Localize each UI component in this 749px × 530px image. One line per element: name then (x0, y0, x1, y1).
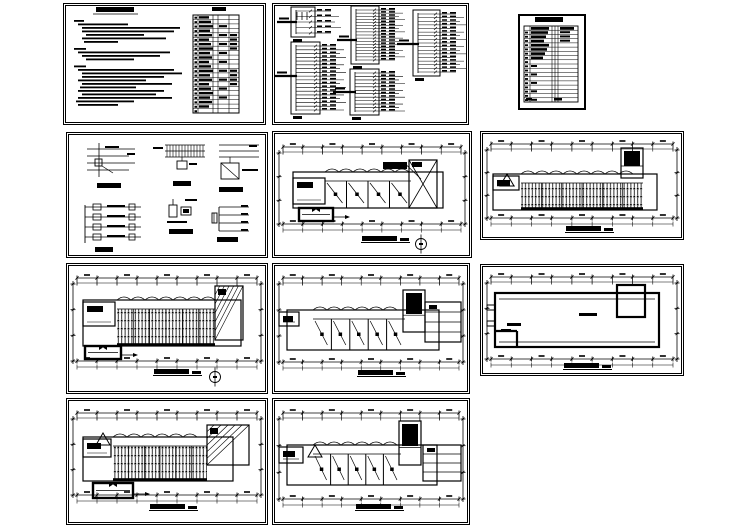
plan-title: 一层电气平面图1:100 (361, 236, 410, 243)
plan-title-text: 一层电气平面图 (362, 236, 397, 241)
detail-caption: 弱电系统图 (173, 181, 191, 186)
sheet-floor-plan-5: 三层照明平面图1:100 (66, 398, 268, 525)
sheet-floor-plan-3: 一层照明平面图1:100 (66, 263, 268, 394)
sheet-distribution-systems: AL1AL2AL3AL4AL5 (272, 3, 469, 125)
plan-title-text: 三层照明平面图 (150, 504, 185, 509)
plan-title-text: 三层电气平面图 (356, 504, 391, 509)
index-title: 图纸目录 (535, 17, 563, 22)
sheet-floor-plan-6: 三层电气平面图1:100 (272, 398, 470, 525)
plan-scale-text: 1:100 (188, 506, 197, 509)
notes-title: 电气设计说明 (96, 7, 134, 12)
design-notes-drawing (66, 6, 263, 122)
plan-title-text: 二层照明平面图 (566, 226, 601, 231)
plan-title-text: 一层照明平面图 (154, 369, 189, 374)
sheet-floor-plan-1: 一层电气平面图1:100 (272, 131, 472, 258)
plan-title: 二层电气平面图1:100 (357, 370, 406, 377)
panel-label: AL5 (415, 78, 424, 81)
distribution-systems-drawing (275, 6, 466, 122)
detail-caption: 应急照明接线图 (97, 183, 121, 188)
plan-title: 二层照明平面图1:100 (565, 226, 614, 233)
plan-scale-text: 1:100 (602, 365, 611, 368)
plan-title: 三层电气平面图1:100 (355, 504, 404, 511)
plan-scale-text: 1:100 (396, 372, 405, 375)
plan-scale-text: 1:100 (604, 228, 613, 231)
sheet-drawing-index: 图纸目录 (518, 14, 586, 110)
detail-caption: 干线系统图 (95, 247, 113, 252)
cad-drawing-collage: { "canvas": {"width": 749, "height": 530… (0, 0, 749, 530)
plan-title: 一层照明平面图1:100 (153, 369, 202, 376)
plan-title: 三层照明平面图1:100 (149, 504, 198, 511)
plan-scale-text: 1:100 (400, 238, 409, 241)
plan-scale-text: 1:100 (192, 371, 201, 374)
detail-caption: 等电位联结大样 (169, 229, 193, 234)
sheet-floor-plan-2: 二层照明平面图1:100 (480, 131, 684, 240)
floor-plan-2-drawing (483, 134, 681, 237)
plan-scale-text: 1:100 (394, 506, 403, 509)
drawing-index-table (520, 16, 584, 108)
plan-title: 屋顶防雷平面图1:100 (563, 363, 612, 370)
sheet-detail-diagrams: 应急照明接线图弱电系统图防雷引下线大样干线系统图等电位联结大样接地装置大样 (66, 132, 268, 258)
plan-title-text: 二层电气平面图 (358, 370, 393, 375)
legend-title: 图例 (212, 7, 226, 11)
panel-label: AL3 (353, 66, 362, 69)
panel-label: AL2 (293, 116, 302, 119)
sheet-roof-plan: 屋顶防雷平面图1:100 (480, 264, 684, 376)
detail-caption: 防雷引下线大样 (219, 187, 243, 192)
panel-label: AL4 (352, 117, 361, 120)
roof-plan-drawing (483, 267, 681, 373)
sheet-design-notes: 电气设计说明图例 (63, 3, 266, 125)
sheet-floor-plan-4: 二层电气平面图1:100 (272, 263, 470, 394)
detail-caption: 接地装置大样 (217, 237, 238, 242)
plan-title-text: 屋顶防雷平面图 (564, 363, 599, 368)
panel-label: AL1 (293, 39, 302, 42)
